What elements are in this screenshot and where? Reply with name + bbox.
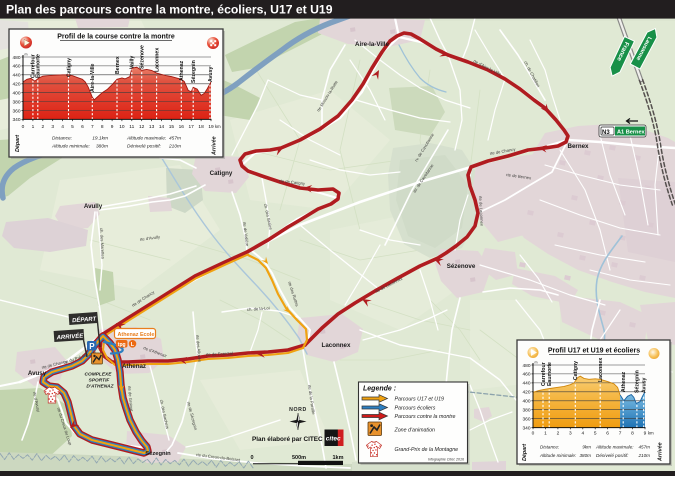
svg-text:Sézegnin: Sézegnin: [191, 60, 197, 83]
svg-text:16: 16: [179, 124, 185, 130]
svg-text:8: 8: [631, 431, 634, 437]
svg-text:380: 380: [522, 408, 530, 414]
svg-text:P: P: [89, 342, 95, 351]
svg-text:18: 18: [198, 124, 204, 130]
svg-text:7: 7: [91, 124, 94, 130]
svg-text:Parcours écoliers: Parcours écoliers: [395, 406, 436, 412]
svg-text:Catigny: Catigny: [66, 58, 72, 77]
svg-text:457m: 457m: [169, 136, 181, 142]
svg-text:6: 6: [81, 124, 84, 130]
svg-text:2: 2: [41, 124, 44, 130]
svg-text:19: 19: [208, 124, 214, 130]
svg-text:11: 11: [129, 124, 134, 130]
svg-text:Catigny: Catigny: [573, 361, 579, 380]
svg-text:Avully: Avully: [84, 203, 103, 210]
svg-text:D'ATHENAZ: D'ATHENAZ: [86, 384, 114, 390]
svg-text:Arrivée: Arrivée: [212, 136, 218, 156]
svg-text:15: 15: [169, 124, 175, 130]
svg-text:Laconnex: Laconnex: [322, 342, 351, 349]
svg-text:400: 400: [522, 399, 530, 405]
svg-text:Plan élaboré par CITEC: Plan élaboré par CITEC: [252, 436, 323, 443]
svg-text:Dénivelé positif:: Dénivelé positif:: [127, 144, 162, 150]
svg-text:340: 340: [522, 425, 530, 431]
svg-text:Profil de la course contre la: Profil de la course contre la montre: [57, 34, 175, 41]
svg-text:km: km: [215, 124, 221, 129]
svg-text:Zone d'animation: Zone d'animation: [394, 428, 436, 434]
svg-text:Dénivelé positif:: Dénivelé positif:: [596, 453, 629, 458]
svg-text:4: 4: [581, 431, 584, 437]
svg-text:Sézenove: Sézenove: [447, 263, 476, 270]
svg-text:Sézenove: Sézenove: [140, 45, 146, 69]
svg-text:Altitude minimale:: Altitude minimale:: [539, 453, 577, 458]
svg-text:1km: 1km: [332, 455, 343, 461]
svg-text:Sézegnin: Sézegnin: [145, 451, 171, 457]
svg-text:440: 440: [12, 73, 20, 79]
svg-text:km: km: [648, 431, 654, 436]
svg-text:Départ: Départ: [15, 135, 21, 152]
svg-text:3: 3: [569, 431, 572, 437]
svg-text:Athenaz Ecole: Athenaz Ecole: [118, 332, 155, 338]
svg-text:360: 360: [522, 417, 530, 423]
svg-text:NORD: NORD: [289, 407, 307, 413]
svg-text:Athenaz: Athenaz: [179, 60, 185, 81]
svg-text:380m: 380m: [96, 144, 108, 150]
svg-text:13: 13: [149, 124, 155, 130]
svg-text:Distance:: Distance:: [540, 445, 560, 450]
svg-text:Altitude minimale:: Altitude minimale:: [51, 144, 91, 150]
svg-text:Catigny: Catigny: [210, 170, 233, 177]
svg-text:Bernex: Bernex: [568, 143, 590, 150]
svg-text:420: 420: [522, 390, 530, 396]
svg-text:Vailly: Vailly: [130, 56, 136, 69]
svg-text:9: 9: [111, 124, 114, 130]
svg-text:Sézegnin: Sézegnin: [635, 370, 641, 393]
svg-text:Aire-la-Ville: Aire-la-Ville: [90, 63, 96, 92]
svg-text:5: 5: [71, 124, 74, 130]
svg-text:14: 14: [159, 124, 165, 130]
svg-text:A1 Bernex: A1 Bernex: [617, 130, 646, 136]
svg-text:Laconnex: Laconnex: [598, 358, 604, 382]
svg-text:Avusy: Avusy: [642, 378, 648, 393]
svg-text:380m: 380m: [580, 453, 592, 458]
svg-text:9km: 9km: [582, 445, 591, 450]
svg-text:Altitude maximale:: Altitude maximale:: [126, 136, 167, 142]
svg-text:6: 6: [606, 431, 609, 437]
svg-text:Athenaz: Athenaz: [122, 363, 146, 370]
svg-text:4: 4: [61, 124, 64, 130]
svg-text:17: 17: [189, 124, 195, 130]
svg-text:citec: citec: [326, 436, 341, 443]
svg-text:Infographie Citec 2016: Infographie Citec 2016: [428, 458, 464, 462]
svg-text:10: 10: [119, 124, 125, 130]
svg-text:Plan des parcours contre la mo: Plan des parcours contre la montre, écol…: [6, 3, 333, 17]
svg-text:Bernex: Bernex: [115, 56, 121, 74]
svg-text:9: 9: [644, 431, 647, 437]
svg-text:0: 0: [22, 124, 25, 130]
svg-text:m: m: [25, 53, 28, 57]
svg-text:Distance:: Distance:: [52, 136, 73, 142]
svg-text:210m: 210m: [638, 453, 651, 458]
svg-text:Avusy: Avusy: [28, 370, 47, 377]
svg-text:Grand-Prix de la Montagne: Grand-Prix de la Montagne: [395, 447, 459, 453]
svg-text:210m: 210m: [168, 144, 181, 150]
svg-text:480: 480: [12, 55, 20, 61]
svg-text:500m: 500m: [292, 455, 306, 461]
svg-text:457m: 457m: [639, 445, 651, 450]
svg-text:COMPLEXE: COMPLEXE: [85, 372, 113, 378]
svg-text:SPORTIF: SPORTIF: [89, 378, 111, 384]
svg-text:0: 0: [250, 455, 253, 461]
svg-text:tpg: tpg: [118, 342, 126, 348]
svg-text:340: 340: [12, 117, 20, 123]
svg-text:1: 1: [32, 124, 35, 130]
svg-text:Laconnex: Laconnex: [154, 48, 160, 72]
svg-text:5: 5: [594, 431, 597, 437]
svg-text:12: 12: [139, 124, 145, 130]
svg-text:Legende :: Legende :: [363, 386, 396, 393]
svg-text:400: 400: [12, 91, 20, 97]
svg-text:Parcours U17 et U19: Parcours U17 et U19: [395, 397, 445, 403]
svg-text:480: 480: [522, 363, 530, 369]
svg-text:1: 1: [544, 431, 547, 437]
svg-text:3: 3: [51, 124, 54, 130]
svg-text:Arrivée: Arrivée: [658, 442, 664, 462]
svg-text:460: 460: [12, 64, 20, 70]
svg-text:460: 460: [522, 372, 530, 378]
svg-text:Profil U17 et U19 et écoliers: Profil U17 et U19 et écoliers: [548, 348, 640, 355]
svg-text:Carrefour: Carrefour: [541, 362, 547, 386]
svg-text:19.1km: 19.1km: [92, 136, 108, 142]
svg-text:0: 0: [532, 431, 535, 437]
svg-text:380: 380: [12, 99, 20, 105]
svg-text:Aire-la-Ville: Aire-la-Ville: [355, 41, 389, 48]
svg-text:Eaumorte: Eaumorte: [36, 54, 42, 78]
svg-text:N3: N3: [602, 130, 610, 136]
svg-text:Parcours contre la montre: Parcours contre la montre: [395, 414, 456, 420]
svg-text:2: 2: [557, 431, 560, 437]
svg-text:Athenaz: Athenaz: [621, 371, 627, 392]
svg-text:Altitude maximale:: Altitude maximale:: [595, 445, 634, 450]
svg-text:8: 8: [101, 124, 104, 130]
svg-text:360: 360: [12, 108, 20, 114]
svg-text:Départ: Départ: [522, 444, 528, 461]
svg-text:m: m: [535, 361, 538, 365]
svg-text:7: 7: [619, 431, 622, 437]
svg-text:Avusy: Avusy: [208, 67, 214, 82]
svg-text:440: 440: [522, 381, 530, 387]
svg-text:Eaumorte: Eaumorte: [547, 362, 553, 386]
svg-text:420: 420: [12, 82, 20, 88]
